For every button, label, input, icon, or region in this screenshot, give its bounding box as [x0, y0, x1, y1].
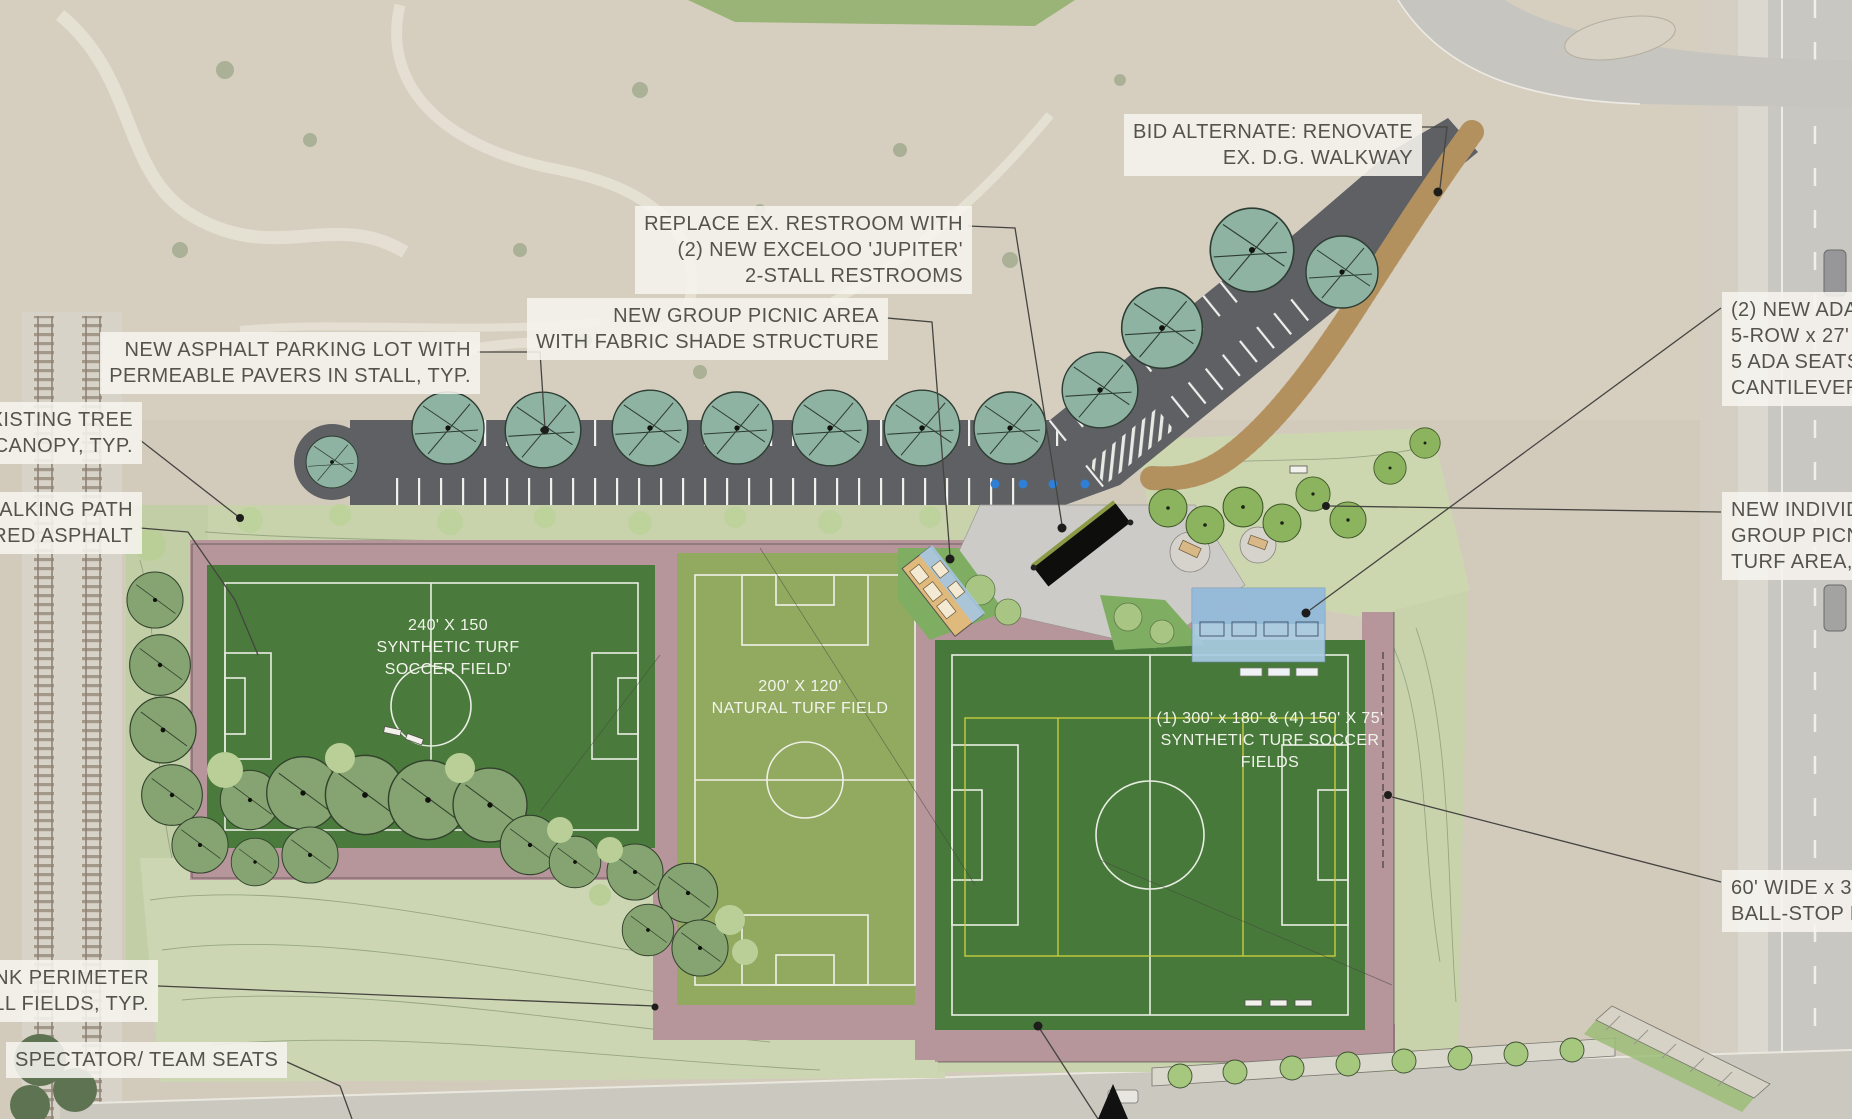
label-line: 2-STALL RESTROOMS	[644, 263, 963, 289]
site-plan-stage: BID ALTERNATE: RENOVATE EX. D.G. WALKWAY…	[0, 0, 1852, 1119]
label-line: PERMEABLE PAVERS IN STALL, TYP.	[109, 363, 471, 389]
label-line: TURF AREA, TYP.	[1731, 549, 1852, 575]
existing-field-edge	[688, 0, 1075, 26]
label-line: NEW ASPHALT PARKING LOT WITH	[109, 337, 471, 363]
label-line: (2) NEW EXCELOO 'JUPITER'	[644, 237, 963, 263]
label-line: COLORED ASPHALT	[0, 523, 133, 549]
field-label-line: 240' X 150	[376, 615, 519, 637]
label-line: CHAIN LINK PERIMETER	[0, 965, 149, 991]
field-label-line: 200' X 120'	[712, 676, 889, 698]
label-walking-path: WALKING PATH COLORED ASPHALT	[0, 492, 142, 554]
label-line: NEW INDIVIDUAL	[1731, 497, 1852, 523]
label-existing-tree: EXISTING TREE CANOPY, TYP.	[0, 402, 142, 464]
label-line: GROUP PICNIC	[1731, 523, 1852, 549]
label-line: SPECTATOR/ TEAM SEATS	[15, 1047, 278, 1073]
label-line: WALKING PATH	[0, 497, 133, 523]
label-line: AT ALL FIELDS, TYP.	[0, 991, 149, 1017]
label-line: CANOPY, TYP.	[0, 433, 133, 459]
label-line: BID ALTERNATE: RENOVATE	[1133, 119, 1413, 145]
label-line: NEW GROUP PICNIC AREA	[536, 303, 879, 329]
field-label-line: FIELDS	[1157, 752, 1384, 774]
label-spectator-seats: SPECTATOR/ TEAM SEATS	[6, 1042, 287, 1078]
label-link-perimeter: CHAIN LINK PERIMETER AT ALL FIELDS, TYP.	[0, 960, 158, 1022]
label-line: 5-ROW x 27'	[1731, 323, 1852, 349]
parked-car	[1824, 585, 1846, 631]
field3-label: (1) 300' x 180' & (4) 150' X 75' SYNTHET…	[1157, 708, 1384, 774]
parking-stalls-bottom	[390, 478, 1030, 505]
field-label-line: SYNTHETIC TURF	[376, 637, 519, 659]
field-label-line: (1) 300' x 180' & (4) 150' X 75'	[1157, 708, 1384, 730]
label-line: REPLACE EX. RESTROOM WITH	[644, 211, 963, 237]
field-label-line: NATURAL TURF FIELD	[712, 698, 889, 720]
parked-car	[1824, 250, 1846, 296]
label-line: (2) NEW ADA	[1731, 297, 1852, 323]
site-plan-drawing	[0, 0, 1852, 1119]
field2-label: 200' X 120' NATURAL TURF FIELD	[712, 676, 889, 720]
label-line: CANTILEVER	[1731, 375, 1852, 401]
label-line: EXISTING TREE	[0, 407, 133, 433]
label-line: 60' WIDE x 30'	[1731, 875, 1852, 901]
label-restroom: REPLACE EX. RESTROOM WITH (2) NEW EXCELO…	[635, 206, 972, 294]
field1-label: 240' X 150 SYNTHETIC TURF SOCCER FIELD'	[376, 615, 519, 681]
label-bid-alternate: BID ALTERNATE: RENOVATE EX. D.G. WALKWAY	[1124, 114, 1422, 176]
label-ball-stop: 60' WIDE x 30' BALL-STOP NETTING	[1722, 870, 1852, 932]
field-label-line: SOCCER FIELD'	[376, 659, 519, 681]
label-line: 5 ADA SEATS	[1731, 349, 1852, 375]
label-ada-bleachers: (2) NEW ADA 5-ROW x 27' 5 ADA SEATS CANT…	[1722, 292, 1852, 406]
label-line: BALL-STOP NETTING	[1731, 901, 1852, 927]
label-individual-picnic: NEW INDIVIDUAL GROUP PICNIC TURF AREA, T…	[1722, 492, 1852, 580]
label-line: WITH FABRIC SHADE STRUCTURE	[536, 329, 879, 355]
soccer-field-3	[935, 640, 1383, 1030]
label-group-picnic: NEW GROUP PICNIC AREA WITH FABRIC SHADE …	[527, 298, 888, 360]
field-label-line: SYNTHETIC TURF SOCCER	[1157, 730, 1384, 752]
label-parking-lot: NEW ASPHALT PARKING LOT WITH PERMEABLE P…	[100, 332, 480, 394]
label-line: EX. D.G. WALKWAY	[1133, 145, 1413, 171]
